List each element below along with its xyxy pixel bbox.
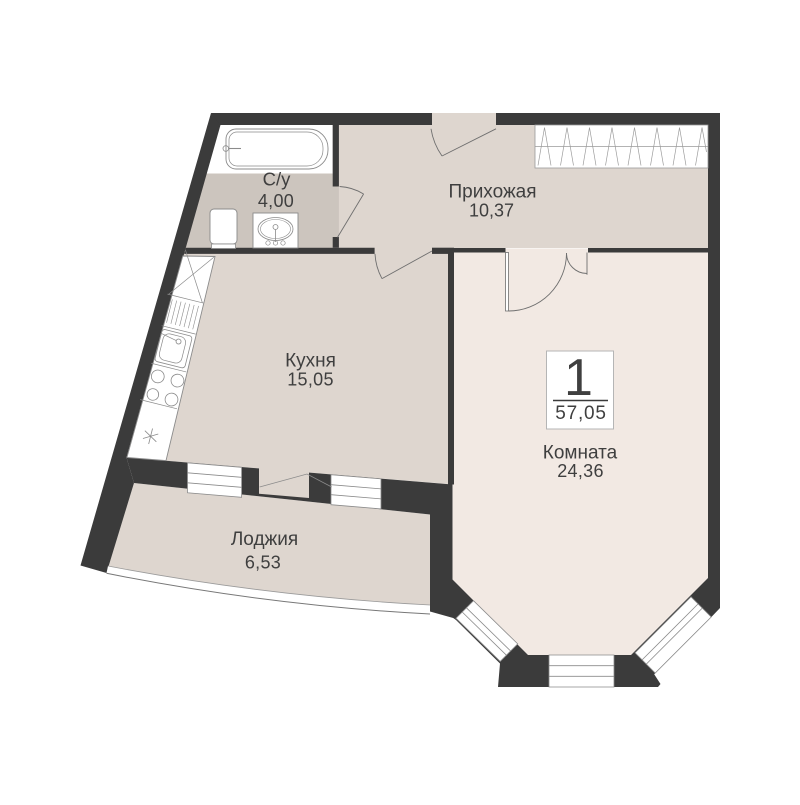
svg-text:6,53: 6,53 [245,553,281,573]
svg-text:Кухня: Кухня [285,351,336,372]
svg-text:24,36: 24,36 [557,461,604,481]
svg-text:10,37: 10,37 [469,201,514,221]
svg-text:Прихожая: Прихожая [448,182,536,203]
svg-text:С/у: С/у [263,169,292,190]
svg-text:1: 1 [564,349,593,407]
svg-text:Лоджия: Лоджия [231,529,298,550]
svg-text:57,05: 57,05 [555,403,607,424]
svg-text:15,05: 15,05 [287,370,334,390]
svg-text:4,00: 4,00 [258,191,294,211]
